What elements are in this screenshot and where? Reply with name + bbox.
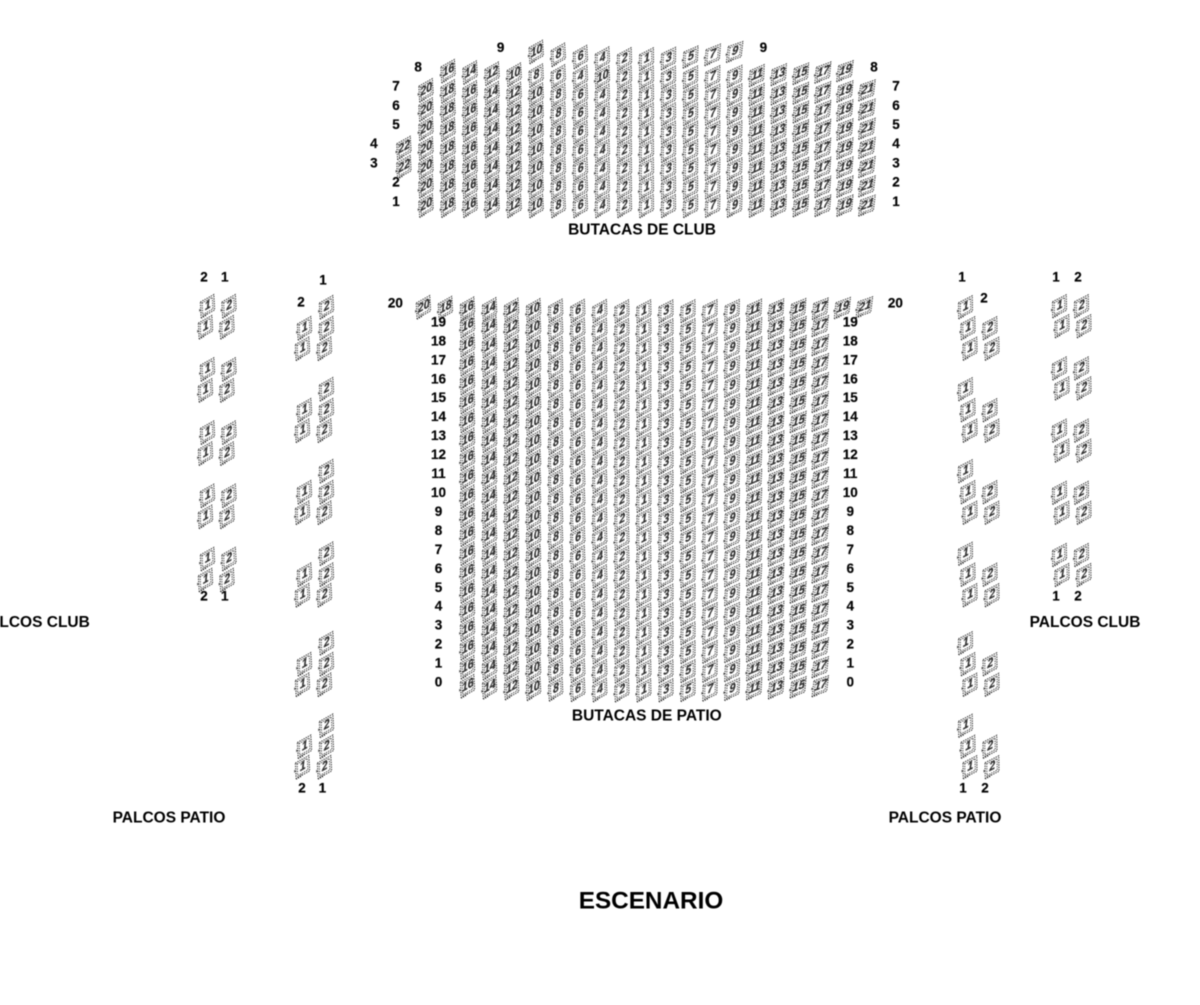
svg-text:5: 5	[435, 580, 443, 595]
svg-text:11: 11	[431, 466, 446, 481]
svg-text:7: 7	[435, 542, 443, 557]
svg-text:1: 1	[319, 273, 327, 288]
svg-text:1: 1	[641, 624, 647, 641]
svg-text:1: 1	[1052, 589, 1060, 604]
svg-text:1: 1	[644, 86, 650, 103]
svg-text:14: 14	[431, 409, 447, 424]
svg-text:1: 1	[641, 472, 647, 489]
svg-text:1: 1	[965, 654, 971, 671]
svg-text:1: 1	[1057, 483, 1063, 500]
svg-text:9: 9	[497, 40, 505, 55]
svg-text:16: 16	[431, 371, 447, 386]
svg-text:1: 1	[963, 716, 969, 733]
svg-text:1: 1	[641, 339, 647, 356]
svg-text:2: 2	[892, 175, 900, 190]
svg-text:1: 1	[641, 605, 647, 622]
svg-text:1: 1	[641, 548, 647, 565]
svg-text:10: 10	[431, 485, 446, 500]
svg-text:12: 12	[843, 447, 858, 462]
svg-text:1: 1	[641, 529, 647, 546]
svg-text:14: 14	[843, 409, 859, 424]
svg-text:ESCENARIO: ESCENARIO	[579, 887, 723, 914]
svg-text:PALCOS CLUB: PALCOS CLUB	[1030, 614, 1141, 631]
svg-text:4: 4	[435, 599, 443, 614]
svg-text:4: 4	[370, 136, 378, 151]
svg-text:1: 1	[967, 757, 973, 774]
svg-text:1: 1	[1057, 545, 1063, 562]
svg-text:1: 1	[1057, 358, 1063, 375]
svg-text:7: 7	[892, 79, 900, 94]
svg-text:1: 1	[641, 586, 647, 603]
svg-text:1: 1	[847, 656, 855, 671]
svg-text:5: 5	[847, 580, 855, 595]
svg-text:6: 6	[435, 561, 443, 576]
svg-text:20: 20	[388, 296, 403, 311]
svg-text:2: 2	[200, 589, 208, 604]
svg-text:18: 18	[431, 333, 447, 348]
svg-text:1: 1	[641, 377, 647, 394]
svg-text:18: 18	[843, 333, 859, 348]
svg-text:0: 0	[435, 675, 443, 690]
svg-text:1: 1	[221, 270, 229, 285]
svg-text:1: 1	[963, 633, 969, 650]
svg-text:4: 4	[892, 136, 900, 151]
svg-text:16: 16	[843, 371, 859, 386]
svg-text:2: 2	[435, 637, 443, 652]
svg-text:1: 1	[644, 104, 650, 121]
svg-text:1: 1	[1059, 565, 1065, 582]
svg-text:PALCOS PATIO: PALCOS PATIO	[113, 810, 226, 827]
svg-text:1: 1	[221, 589, 229, 604]
svg-text:1: 1	[644, 178, 650, 195]
svg-text:2: 2	[1074, 270, 1082, 285]
svg-text:1: 1	[641, 567, 647, 584]
svg-text:1: 1	[644, 123, 650, 140]
svg-text:7: 7	[392, 79, 400, 94]
svg-text:1: 1	[641, 396, 647, 413]
svg-text:2: 2	[980, 291, 988, 306]
svg-text:1: 1	[1052, 270, 1060, 285]
svg-text:12: 12	[431, 447, 446, 462]
svg-text:2: 2	[392, 175, 400, 190]
svg-text:1: 1	[892, 194, 900, 209]
svg-text:1: 1	[1059, 503, 1065, 520]
svg-text:1: 1	[967, 339, 973, 356]
svg-text:9: 9	[847, 504, 855, 519]
svg-text:1: 1	[644, 141, 650, 158]
svg-text:8: 8	[414, 59, 422, 74]
svg-text:9: 9	[760, 40, 768, 55]
svg-text:1: 1	[963, 297, 969, 314]
svg-text:1: 1	[965, 737, 971, 754]
svg-text:1: 1	[641, 320, 647, 337]
svg-text:1: 1	[965, 565, 971, 582]
svg-text:1: 1	[958, 270, 966, 285]
svg-text:20: 20	[888, 296, 903, 311]
svg-text:1: 1	[967, 503, 973, 520]
svg-text:1: 1	[641, 301, 647, 318]
svg-text:6: 6	[392, 98, 400, 113]
svg-text:1: 1	[967, 675, 973, 692]
svg-text:PALCOS CLUB: PALCOS CLUB	[0, 614, 90, 631]
svg-text:2: 2	[298, 781, 306, 796]
svg-text:4: 4	[847, 599, 855, 614]
svg-text:1: 1	[644, 68, 650, 85]
svg-text:7: 7	[847, 542, 855, 557]
svg-text:1: 1	[641, 453, 647, 470]
svg-text:11: 11	[843, 466, 858, 481]
svg-text:19: 19	[843, 314, 858, 329]
svg-text:10: 10	[843, 485, 858, 500]
svg-text:1: 1	[965, 318, 971, 335]
svg-text:1: 1	[641, 680, 647, 697]
svg-text:BUTACAS DE CLUB: BUTACAS DE CLUB	[568, 222, 716, 239]
svg-text:1: 1	[641, 491, 647, 508]
svg-text:19: 19	[431, 314, 446, 329]
svg-text:1: 1	[959, 781, 967, 796]
svg-text:1: 1	[641, 643, 647, 660]
svg-text:17: 17	[843, 352, 858, 367]
svg-text:1: 1	[641, 358, 647, 375]
svg-text:1: 1	[965, 400, 971, 417]
svg-text:1: 1	[644, 49, 650, 66]
svg-text:1: 1	[641, 415, 647, 432]
svg-text:1: 1	[1059, 316, 1065, 333]
svg-text:13: 13	[843, 428, 859, 443]
svg-text:0: 0	[847, 675, 855, 690]
svg-text:15: 15	[431, 390, 447, 405]
svg-text:1: 1	[965, 482, 971, 499]
svg-text:5: 5	[892, 117, 900, 132]
svg-text:1: 1	[1059, 441, 1065, 458]
svg-text:1: 1	[641, 661, 647, 678]
svg-text:1: 1	[435, 656, 443, 671]
svg-text:1: 1	[967, 585, 973, 602]
svg-text:2: 2	[297, 295, 305, 310]
svg-text:1: 1	[963, 379, 969, 396]
svg-text:2: 2	[981, 781, 989, 796]
svg-text:1: 1	[1059, 378, 1065, 395]
svg-text:8: 8	[870, 59, 878, 74]
svg-text:3: 3	[435, 618, 443, 633]
svg-text:1: 1	[392, 194, 400, 209]
svg-text:PALCOS PATIO: PALCOS PATIO	[889, 810, 1002, 827]
svg-text:BUTACAS DE PATIO: BUTACAS DE PATIO	[572, 707, 722, 724]
svg-text:1: 1	[967, 421, 973, 438]
svg-text:1: 1	[644, 159, 650, 176]
svg-text:3: 3	[370, 155, 378, 170]
svg-text:1: 1	[963, 544, 969, 561]
svg-text:3: 3	[847, 618, 855, 633]
svg-text:1: 1	[963, 461, 969, 478]
svg-text:1: 1	[1057, 296, 1063, 313]
svg-text:6: 6	[892, 98, 900, 113]
svg-text:2: 2	[200, 270, 208, 285]
svg-text:8: 8	[435, 523, 443, 538]
svg-text:1: 1	[644, 196, 650, 213]
svg-text:15: 15	[843, 390, 859, 405]
svg-text:1: 1	[319, 781, 327, 796]
svg-text:6: 6	[847, 561, 855, 576]
svg-text:9: 9	[435, 504, 443, 519]
svg-text:5: 5	[392, 117, 400, 132]
svg-text:1: 1	[641, 510, 647, 527]
svg-text:3: 3	[892, 155, 900, 170]
svg-text:13: 13	[431, 428, 447, 443]
svg-text:17: 17	[431, 352, 446, 367]
svg-text:1: 1	[641, 434, 647, 451]
svg-text:2: 2	[847, 637, 855, 652]
svg-text:1: 1	[1057, 421, 1063, 438]
svg-text:2: 2	[1074, 589, 1082, 604]
svg-text:8: 8	[847, 523, 855, 538]
